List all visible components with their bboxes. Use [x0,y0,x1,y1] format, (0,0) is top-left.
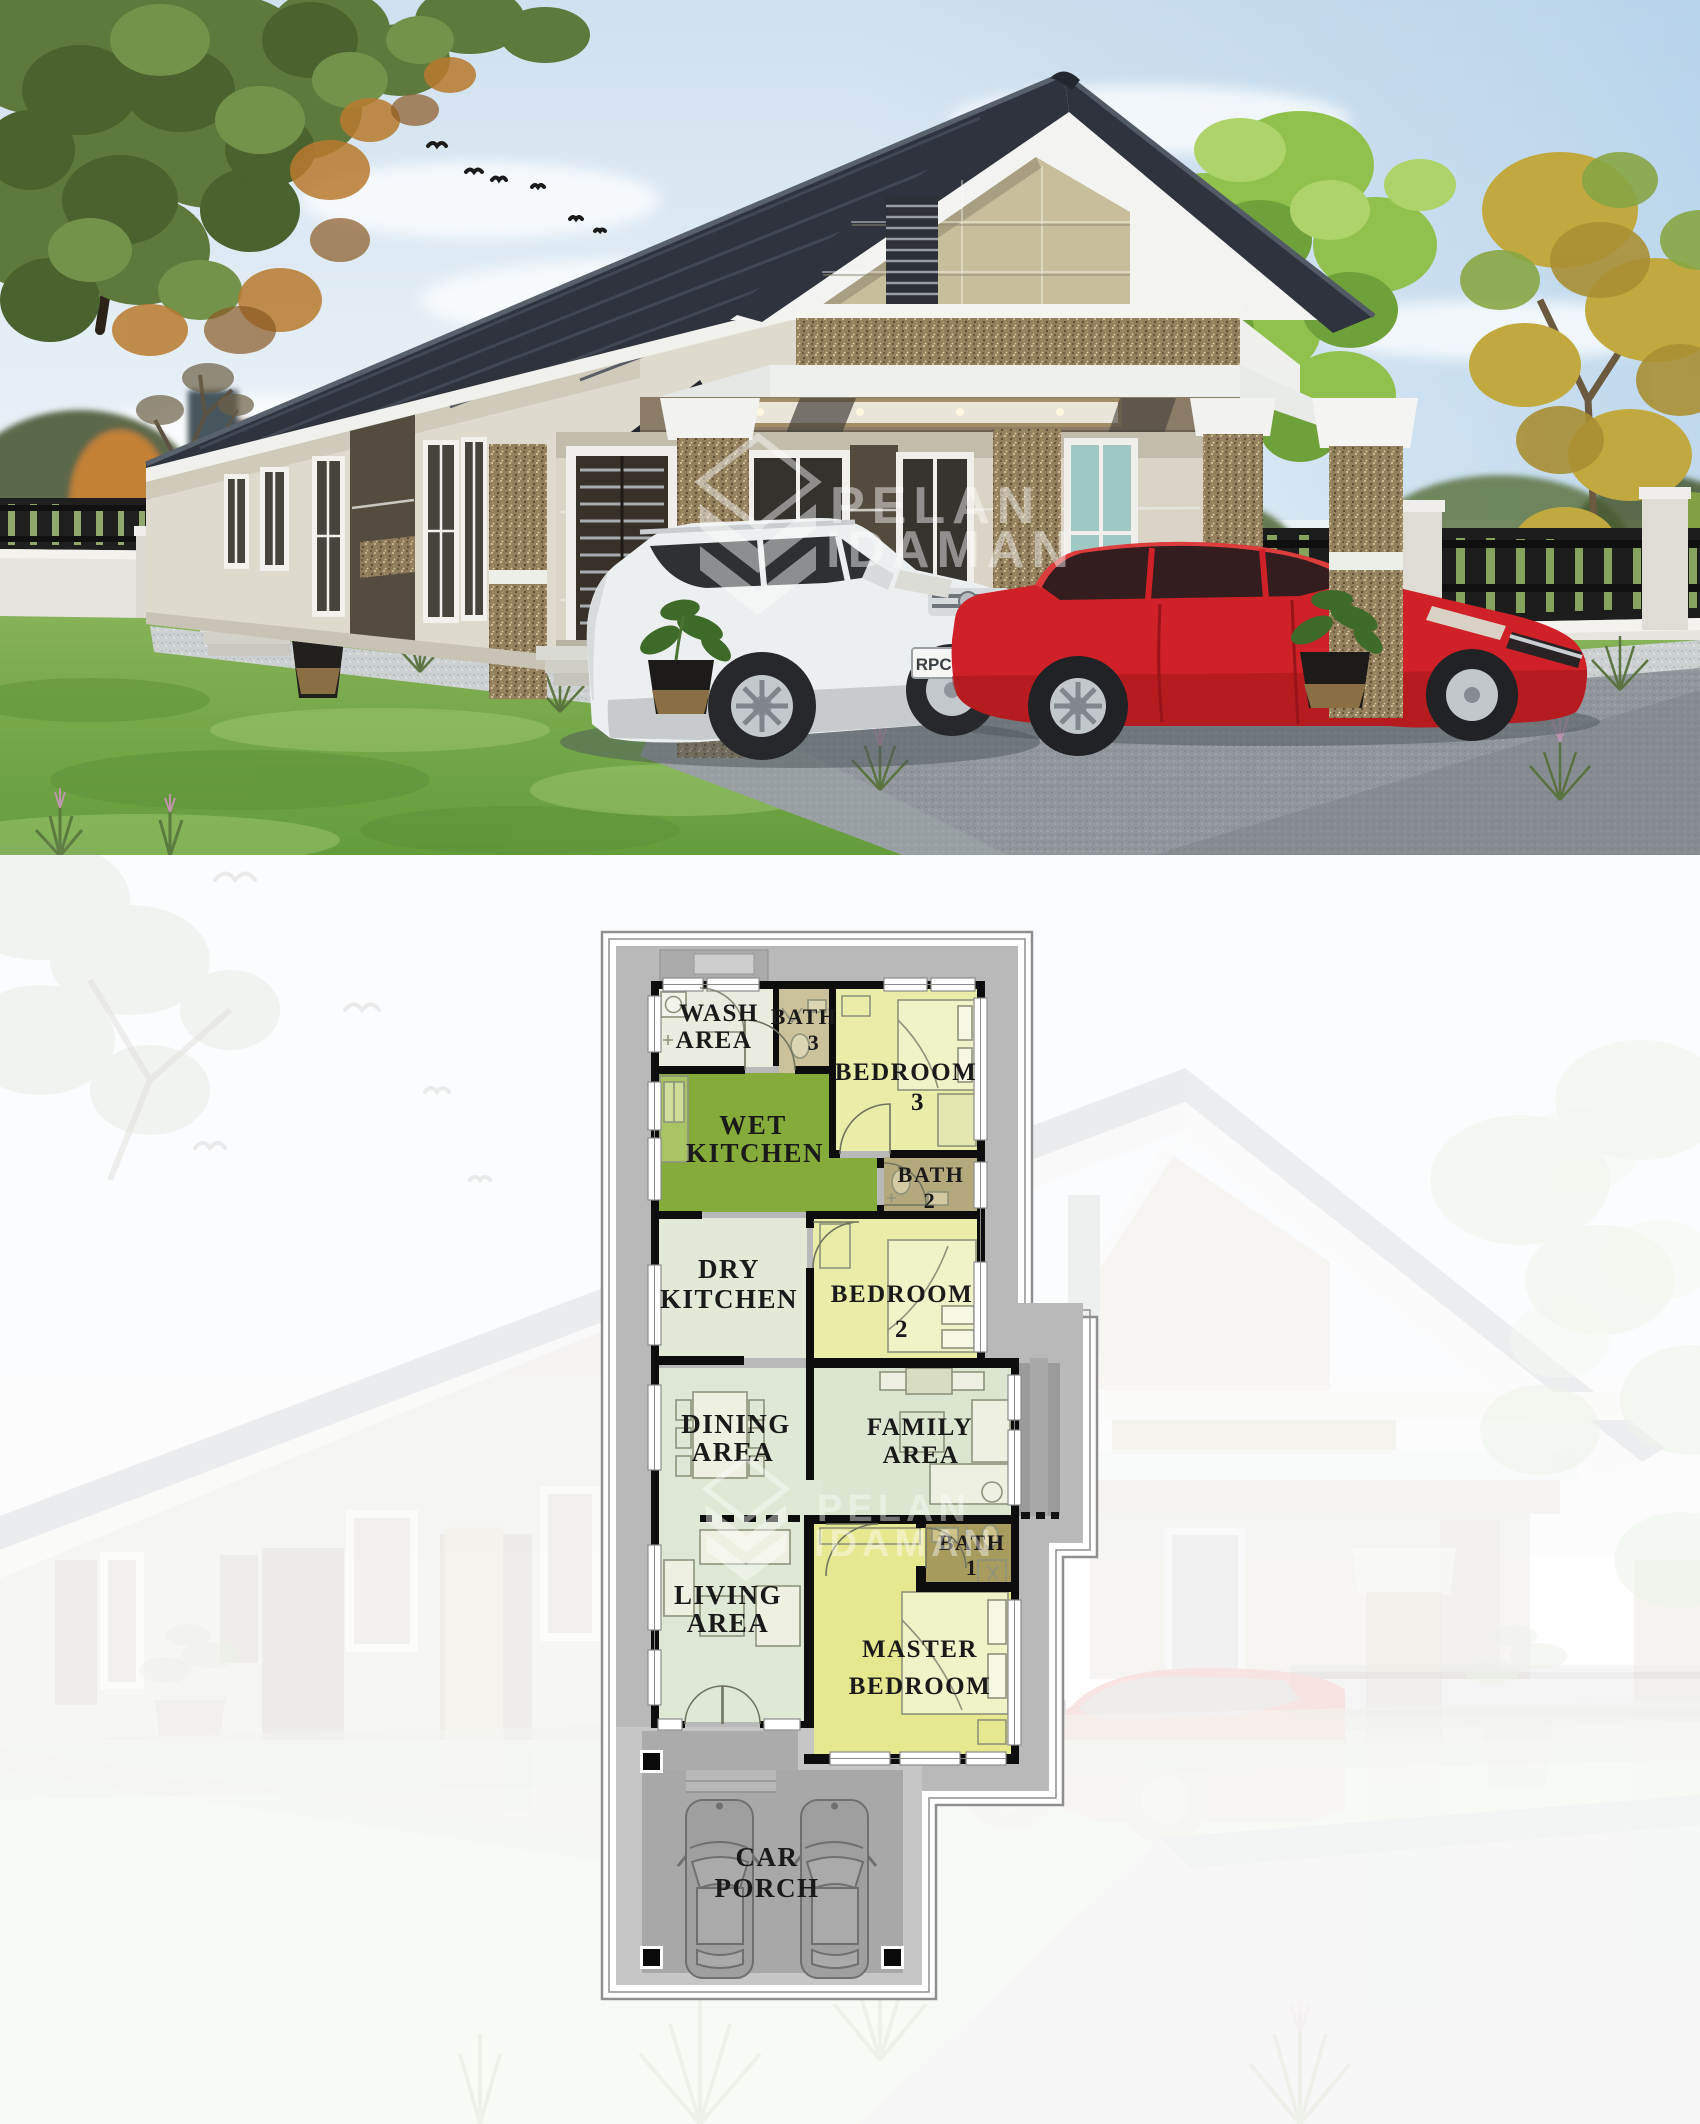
svg-text:LIVING: LIVING [674,1580,782,1610]
svg-text:BEDROOM: BEDROOM [835,1059,977,1086]
svg-text:BEDROOM: BEDROOM [849,1673,991,1700]
svg-text:CAR: CAR [736,1842,799,1872]
svg-text:MASTER: MASTER [862,1636,978,1663]
svg-text:KITCHEN: KITCHEN [686,1138,824,1168]
svg-text:AREA: AREA [687,1608,770,1638]
svg-text:3: 3 [911,1089,925,1116]
svg-text:AREA: AREA [883,1442,960,1469]
svg-text:3: 3 [808,1030,821,1055]
svg-text:IDAMAN: IDAMAN [826,521,1076,579]
svg-text:2: 2 [895,1316,909,1343]
svg-text:BATH: BATH [771,1004,838,1029]
svg-text:KITCHEN: KITCHEN [660,1284,798,1314]
svg-text:2: 2 [924,1188,937,1213]
svg-text:PORCH: PORCH [715,1873,820,1903]
svg-text:WET: WET [719,1110,787,1140]
svg-text:DRY: DRY [698,1254,760,1284]
svg-text:BEDROOM: BEDROOM [831,1281,973,1308]
svg-text:FAMILY: FAMILY [867,1414,973,1441]
svg-text:IDAMAN: IDAMAN [814,1523,996,1565]
svg-text:AREA: AREA [676,1027,753,1054]
svg-text:WASH: WASH [679,1000,759,1027]
svg-text:BATH: BATH [898,1162,965,1187]
svg-text:AREA: AREA [692,1437,775,1467]
svg-text:DINING: DINING [681,1409,791,1439]
